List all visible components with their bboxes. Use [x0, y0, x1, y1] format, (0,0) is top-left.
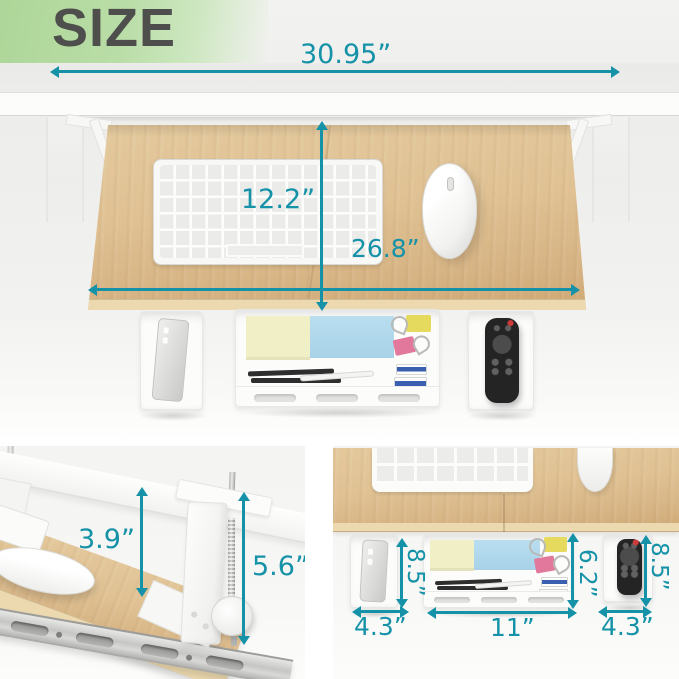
eraser	[396, 364, 427, 375]
tray-shadow	[466, 411, 538, 421]
right-tray-width-label: 4.3”	[601, 614, 654, 640]
organizer-front-lip	[424, 591, 572, 607]
remote-control	[617, 539, 642, 595]
underside-detail-panel: 8.5” 4.3” 6.2” 11” 8.5” 4.3”	[333, 446, 679, 679]
side-tray-left	[350, 534, 398, 608]
left-tray-depth-label: 8.5”	[403, 548, 427, 597]
keyboard-keys	[377, 448, 528, 484]
lip-slot	[434, 597, 470, 603]
tray-depth-arrow	[320, 130, 323, 302]
lip-slot	[316, 394, 358, 402]
sticky-note-blue	[310, 316, 394, 358]
desk-leg-right	[592, 117, 630, 222]
left-tray-width-label: 4.3”	[354, 614, 407, 640]
binder-clip-yellow	[406, 315, 431, 332]
sticky-note-yellow	[246, 316, 310, 360]
lip-slot	[254, 394, 296, 402]
size-infographic: SIZE	[0, 0, 679, 679]
remote-control	[485, 318, 519, 403]
right-tray-depth-label: 8.5”	[647, 542, 671, 591]
clamp-height-label: 5.6”	[252, 553, 305, 581]
organizer-width-label: 11”	[490, 615, 535, 641]
rail-slot	[205, 655, 244, 671]
side-tray-right	[468, 311, 534, 410]
clamp-screw-tip	[231, 636, 237, 646]
clamp-height-arrow	[242, 501, 245, 636]
desk-width-arrow	[59, 70, 611, 73]
page-title: SIZE	[52, 0, 176, 58]
rail-slot	[10, 620, 49, 636]
desk-top	[0, 92, 679, 116]
desk-leg-left	[46, 117, 84, 222]
rail-bolt	[56, 631, 63, 638]
tray-seam	[503, 494, 505, 532]
rail-slot	[75, 632, 114, 648]
lip-slot	[528, 597, 564, 603]
phone	[359, 539, 388, 602]
rail-bolt	[186, 654, 193, 661]
organizer-tray	[235, 309, 440, 407]
tray-shadow	[138, 411, 208, 421]
binder-clip-yellow	[544, 537, 567, 552]
organizer-depth-label: 6.2”	[575, 549, 599, 598]
mouse-scroll-wheel	[447, 177, 454, 191]
organizer-tray	[423, 534, 573, 608]
tray-front-edge	[333, 523, 679, 531]
tray-width-arrow	[97, 288, 571, 291]
organizer-front-lip	[236, 386, 439, 406]
eraser	[541, 577, 568, 587]
rail-slot	[140, 643, 179, 659]
lip-slot	[378, 394, 420, 402]
desk-width-label: 30.95”	[300, 41, 391, 69]
clearance-arrow	[140, 496, 143, 588]
clamp-detail-panel: 3.9” 5.6”	[0, 446, 305, 679]
keyboard-partial	[372, 448, 533, 492]
clearance-label: 3.9”	[78, 526, 135, 554]
desk-underside-shadow	[80, 117, 600, 122]
lip-slot	[481, 597, 517, 603]
phone	[151, 318, 189, 402]
tray-shadow	[240, 408, 440, 418]
overview-panel: SIZE	[0, 0, 679, 446]
keyboard-spacebar	[226, 244, 304, 257]
tray-width-label: 26.8”	[351, 236, 420, 262]
side-tray-left	[140, 311, 203, 410]
tray-depth-label: 12.2”	[241, 186, 315, 214]
binder-clip-pink	[534, 555, 556, 573]
mouse	[422, 163, 477, 259]
sticky-note-yellow	[430, 540, 474, 571]
binder-clip-pink	[393, 336, 417, 356]
clamp-knob	[211, 596, 253, 636]
